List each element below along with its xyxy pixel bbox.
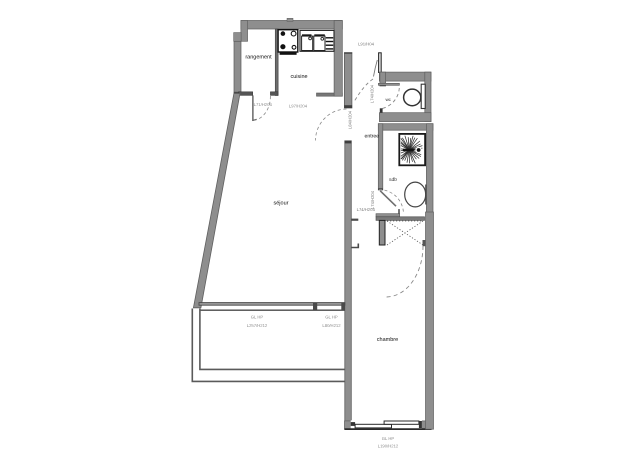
svg-text:sdb: sdb: [389, 177, 397, 183]
svg-text:cuisine: cuisine: [290, 74, 307, 80]
svg-text:wc: wc: [385, 97, 391, 102]
svg-text:L84/H204: L84/H204: [348, 110, 353, 129]
svg-text:chambre: chambre: [377, 337, 398, 343]
svg-text:L74/H204: L74/H204: [370, 84, 375, 103]
svg-text:GL HP: GL HP: [325, 315, 338, 320]
svg-text:entree: entree: [364, 134, 379, 140]
svg-text:L71/H204: L71/H204: [254, 102, 273, 107]
svg-text:L91/H04: L91/H04: [358, 42, 375, 47]
svg-text:L74/H204: L74/H204: [370, 190, 375, 209]
svg-text:L80/H212: L80/H212: [322, 323, 341, 328]
svg-text:séjour: séjour: [274, 200, 289, 207]
svg-text:GL HP: GL HP: [382, 436, 395, 441]
svg-text:L257/H212: L257/H212: [247, 323, 268, 328]
svg-text:L190/H212: L190/H212: [378, 444, 399, 449]
svg-text:rangement: rangement: [245, 55, 272, 61]
svg-text:L97/H204: L97/H204: [289, 104, 308, 109]
svg-text:GL HP: GL HP: [251, 315, 264, 320]
